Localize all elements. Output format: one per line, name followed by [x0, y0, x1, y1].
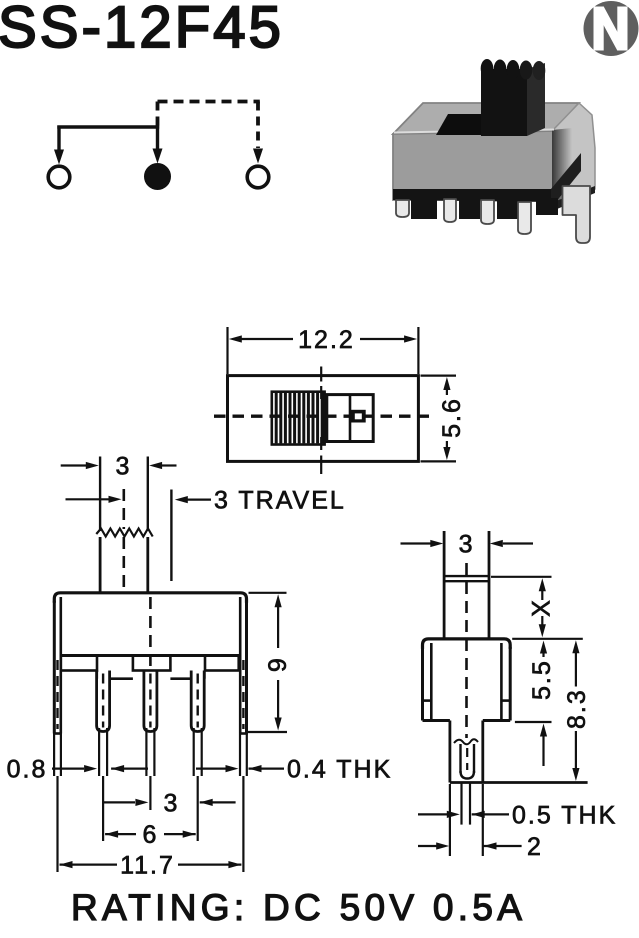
svg-text:SS-12F45: SS-12F45 [0, 0, 284, 60]
svg-text:0.8: 0.8 [7, 756, 48, 784]
svg-text:0.4 THK: 0.4 THK [287, 756, 392, 784]
svg-text:3: 3 [459, 531, 475, 559]
svg-text:0.5 THK: 0.5 THK [512, 801, 617, 829]
svg-text:5.5: 5.5 [528, 659, 556, 700]
svg-text:3: 3 [164, 790, 180, 818]
svg-text:8.3: 8.3 [563, 688, 591, 729]
svg-text:3 TRAVEL: 3 TRAVEL [214, 487, 346, 515]
svg-text:RATING: DC 50V 0.5A: RATING: DC 50V 0.5A [71, 887, 526, 928]
svg-text:6: 6 [143, 821, 159, 849]
svg-text:X: X [527, 598, 555, 617]
svg-text:3: 3 [116, 453, 132, 481]
svg-text:11.7: 11.7 [120, 852, 175, 880]
svg-text:2: 2 [527, 833, 543, 861]
svg-text:12.2: 12.2 [298, 326, 355, 354]
svg-text:9: 9 [264, 656, 292, 672]
svg-text:5.6: 5.6 [438, 397, 466, 438]
